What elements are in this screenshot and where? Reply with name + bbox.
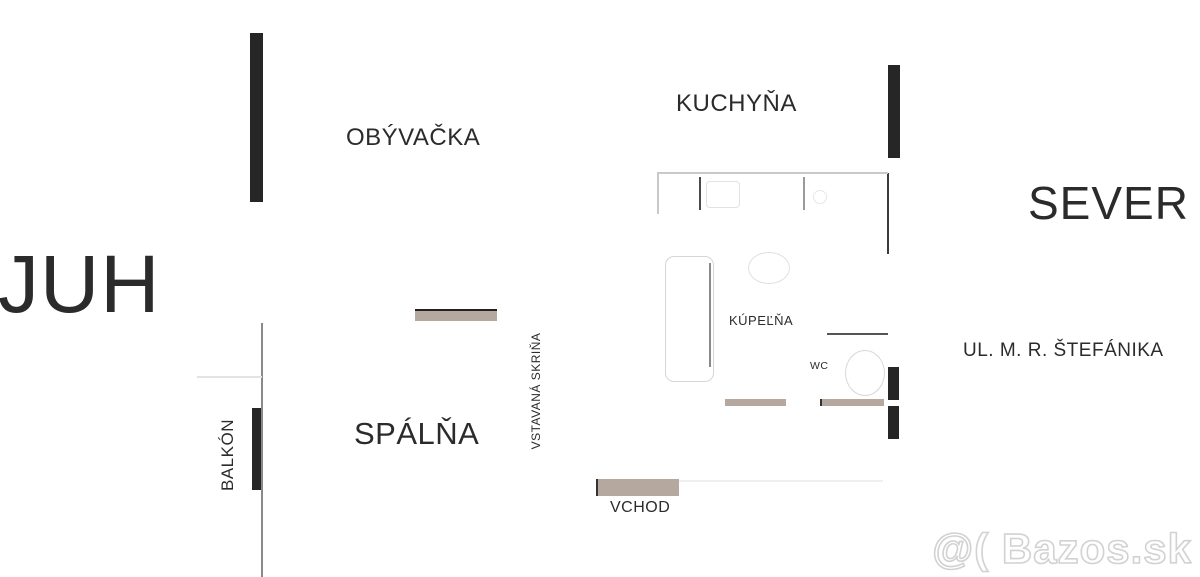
entrance-door-marker xyxy=(596,479,679,496)
living-room-wall xyxy=(250,33,263,202)
bathtub-fixture xyxy=(665,256,714,382)
street-label: UL. M. R. ŠTEFÁNIKA xyxy=(963,340,1164,362)
kitchen-label: KUCHYŇA xyxy=(676,90,797,118)
kitchen-stove-fixture xyxy=(813,190,827,204)
kitchen-counter-divider-2 xyxy=(803,177,805,210)
kitchen-right-wall xyxy=(888,65,900,158)
compass-north-label: SEVER xyxy=(1028,176,1189,230)
wardrobe-marker xyxy=(415,309,497,321)
kitchen-counter-top-line xyxy=(657,172,888,174)
kitchen-counter-right-wall-line xyxy=(887,173,889,254)
kitchen-counter-left-line xyxy=(657,172,659,214)
wc-right-wall-upper xyxy=(888,367,899,400)
wc-label: WC xyxy=(810,360,829,372)
kitchen-counter-divider-1 xyxy=(699,177,701,210)
balcony-wall-line xyxy=(261,323,263,577)
entry-hall-line xyxy=(677,480,883,482)
floor-plan: JUH SEVER UL. M. R. ŠTEFÁNIKA OBÝVAČKA K… xyxy=(0,0,1200,577)
washbasin-fixture xyxy=(748,252,790,284)
entrance-label: VCHOD xyxy=(610,499,670,517)
bedroom-label: SPÁLŇA xyxy=(354,416,479,452)
kitchen-sink-fixture xyxy=(706,181,740,208)
watermark: @( Bazos.sk xyxy=(932,525,1192,573)
built-in-wardrobe-label: VSTAVANÁ SKRIŇA xyxy=(529,333,543,450)
bathroom-label: KÚPEĽŇA xyxy=(729,313,793,328)
compass-south-label: JUH xyxy=(0,238,160,332)
wc-right-wall-lower xyxy=(888,406,899,439)
bathtub-edge-line xyxy=(709,263,711,367)
wc-top-line xyxy=(827,333,888,335)
toilet-fixture xyxy=(845,350,885,396)
balcony-top-line xyxy=(197,376,262,378)
wc-door-marker xyxy=(820,399,884,406)
living-room-label: OBÝVAČKA xyxy=(346,124,480,152)
bathroom-door-marker xyxy=(725,399,786,406)
balcony-label: BALKÓN xyxy=(218,419,238,491)
